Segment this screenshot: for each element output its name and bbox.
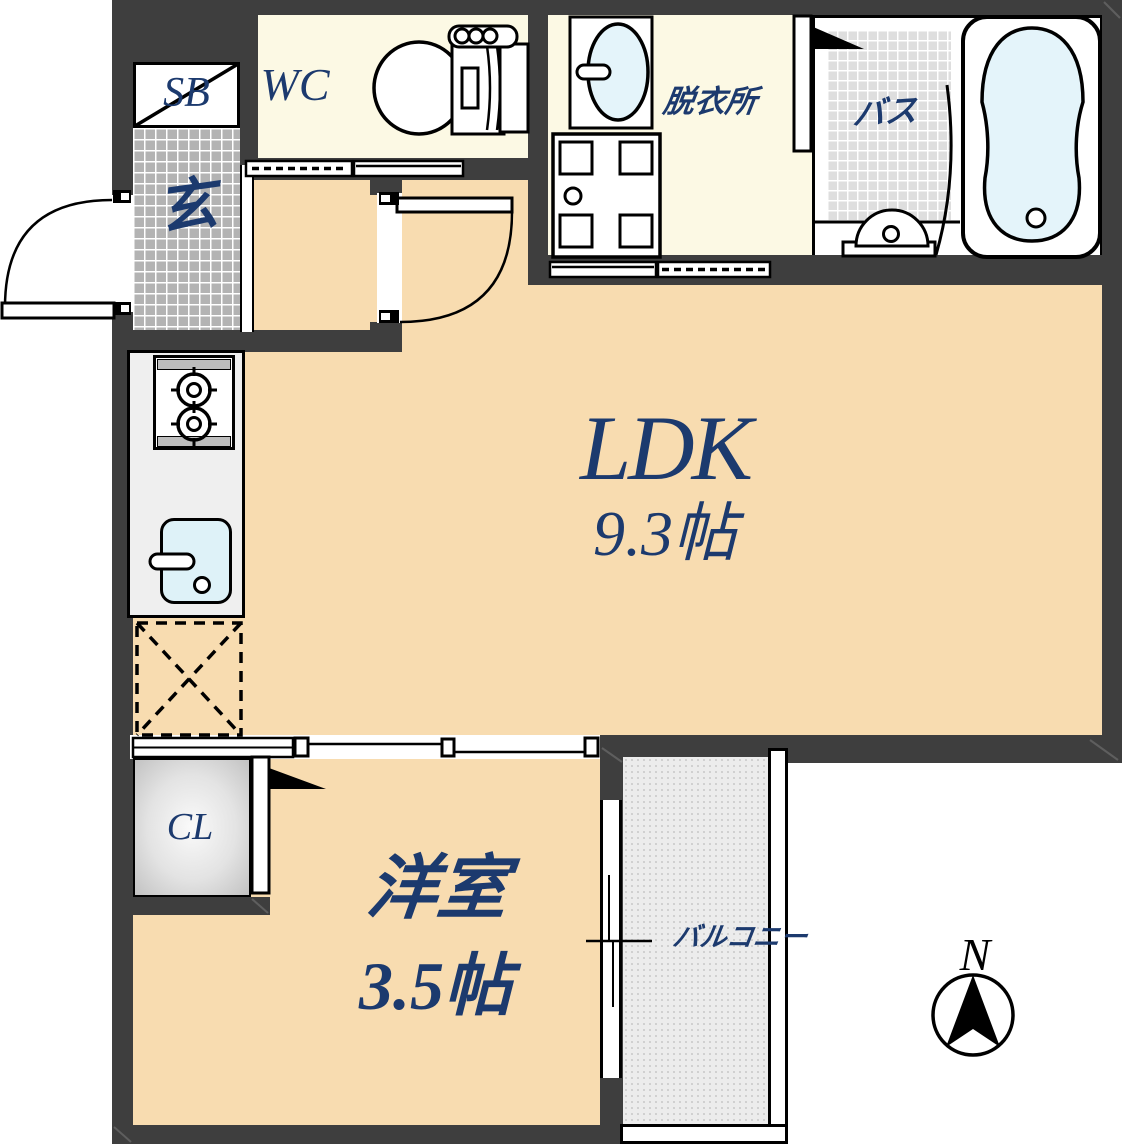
refrigerator-space (137, 623, 241, 735)
western-room-label: 洋室 (326, 855, 548, 925)
closet-door (252, 757, 326, 893)
shoe-box-label: SB (133, 72, 240, 114)
compass-north-label: N (950, 932, 1000, 978)
compass-icon (933, 975, 1013, 1055)
closet-label: CL (140, 808, 240, 846)
window-sash-marks (586, 875, 652, 1007)
toilet-icon (374, 26, 528, 134)
ldk-door (379, 192, 512, 323)
western-room-size-label: 3.5帖 (318, 952, 553, 1020)
partition-sliding-door (133, 738, 598, 757)
wc-sliding-door (246, 161, 463, 176)
balcony-label: バルコニー (643, 924, 837, 951)
wash-basin-icon (570, 17, 652, 128)
washing-machine-icon (553, 134, 660, 257)
sink-icon (150, 554, 210, 593)
wc-label: WC (255, 62, 335, 108)
floor-plan: SB 玄 WC 脱衣所 バス LDK 9.3帖 洋室 3.5帖 CL バルコニー… (0, 0, 1122, 1144)
bath-label: バス (839, 93, 932, 131)
dressing-room-sliding-door (550, 262, 770, 277)
ldk-size-label: 9.3帖 (555, 502, 775, 566)
dressing-room-label: 脱衣所 (643, 86, 777, 117)
entrance-door (2, 190, 131, 318)
bathtub-icon (963, 17, 1100, 257)
ldk-label: LDK (555, 402, 775, 494)
stove-icon (171, 367, 217, 447)
